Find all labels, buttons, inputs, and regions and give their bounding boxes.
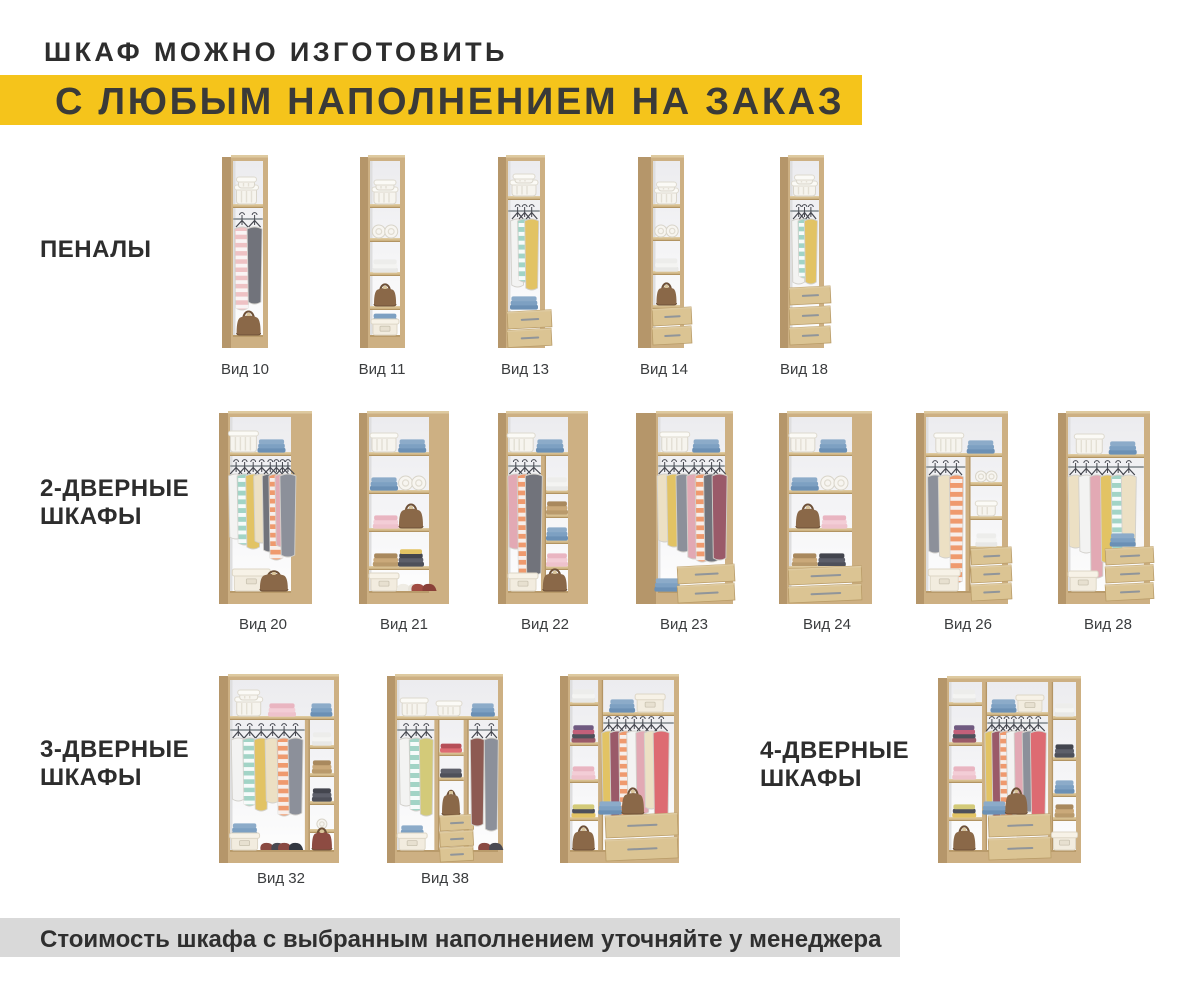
svg-text:3-ДВЕРНЫЕ: 3-ДВЕРНЫЕ — [40, 736, 189, 763]
svg-text:Вид 13: Вид 13 — [501, 361, 549, 378]
svg-text:Вид 21: Вид 21 — [380, 616, 428, 633]
svg-text:Вид 28: Вид 28 — [1084, 616, 1132, 633]
svg-text:Вид 14: Вид 14 — [640, 361, 688, 378]
svg-text:Вид 18: Вид 18 — [780, 361, 828, 378]
svg-text:Стоимость шкафа с выбранным на: Стоимость шкафа с выбранным наполнением … — [40, 926, 882, 953]
svg-text:Вид 23: Вид 23 — [660, 616, 708, 633]
svg-text:Вид 26: Вид 26 — [944, 616, 992, 633]
svg-text:ШКАФЫ: ШКАФЫ — [40, 764, 142, 791]
svg-text:Вид 11: Вид 11 — [359, 361, 406, 378]
svg-text:ШКАФЫ: ШКАФЫ — [760, 765, 862, 792]
svg-text:С ЛЮБЫМ НАПОЛНЕНИЕМ НА ЗАКАЗ: С ЛЮБЫМ НАПОЛНЕНИЕМ НА ЗАКАЗ — [55, 81, 844, 123]
svg-text:4-ДВЕРНЫЕ: 4-ДВЕРНЫЕ — [760, 737, 909, 764]
svg-text:ПЕНАЛЫ: ПЕНАЛЫ — [40, 236, 152, 263]
svg-text:ШКАФЫ: ШКАФЫ — [40, 503, 142, 530]
svg-text:2-ДВЕРНЫЕ: 2-ДВЕРНЫЕ — [40, 475, 189, 502]
svg-text:ШКАФ МОЖНО ИЗГОТОВИТЬ: ШКАФ МОЖНО ИЗГОТОВИТЬ — [44, 37, 508, 67]
svg-text:Вид 38: Вид 38 — [421, 870, 469, 887]
svg-text:Вид 24: Вид 24 — [803, 616, 851, 633]
svg-text:Вид 10: Вид 10 — [221, 361, 269, 378]
svg-text:Вид 20: Вид 20 — [239, 616, 287, 633]
svg-text:Вид 22: Вид 22 — [521, 616, 569, 633]
svg-text:Вид 32: Вид 32 — [257, 870, 305, 887]
